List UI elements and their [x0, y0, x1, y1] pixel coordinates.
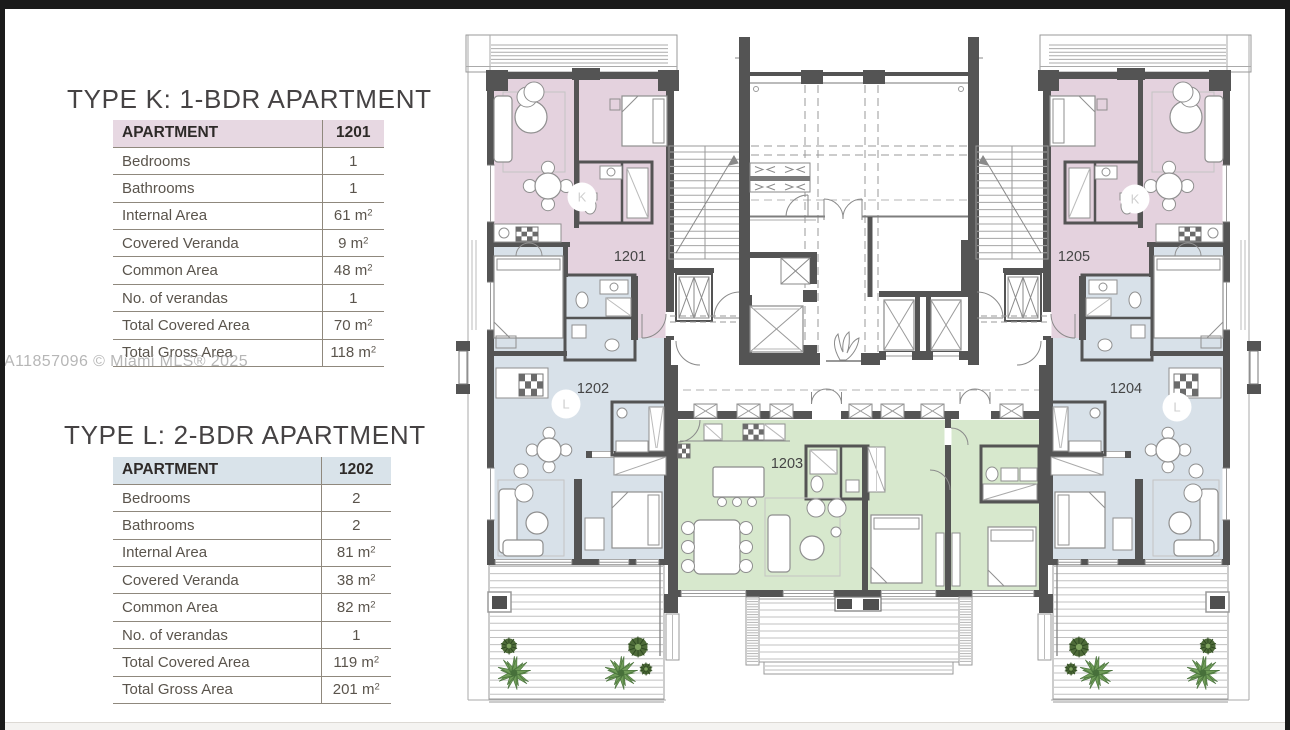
svg-text:1203: 1203 — [771, 456, 803, 472]
svg-text:L: L — [562, 397, 569, 412]
svg-text:1204: 1204 — [1110, 381, 1142, 397]
svg-text:1201: 1201 — [614, 249, 646, 265]
svg-text:K: K — [1131, 192, 1140, 207]
svg-text:K: K — [578, 190, 587, 205]
svg-text:1202: 1202 — [577, 381, 609, 397]
svg-text:1205: 1205 — [1058, 249, 1090, 265]
svg-text:L: L — [1173, 400, 1180, 415]
